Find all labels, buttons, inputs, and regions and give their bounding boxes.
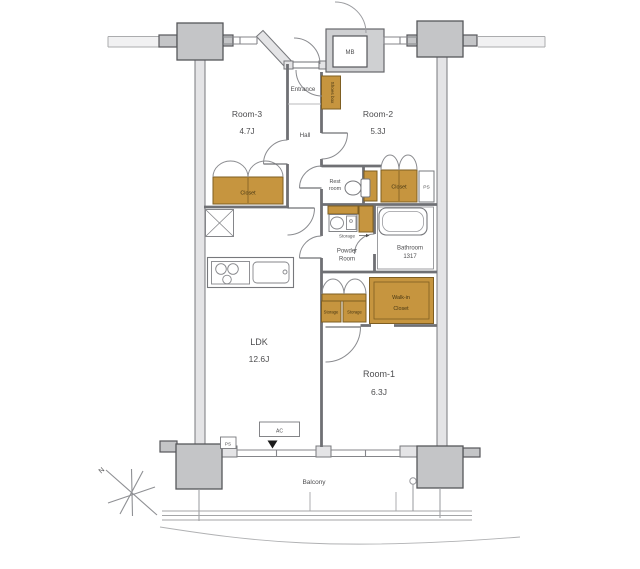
pillar-bottom-right bbox=[417, 446, 463, 488]
north-compass bbox=[106, 469, 157, 516]
entrance-door-arc bbox=[294, 38, 320, 64]
room2-name: Room-2 bbox=[363, 109, 394, 119]
bathroom-name: Bathroom bbox=[397, 246, 423, 252]
pillar-top-right bbox=[417, 21, 463, 57]
corridor-lines-right bbox=[478, 37, 545, 48]
room1-door-arc bbox=[326, 327, 361, 362]
linen-shelf bbox=[328, 206, 358, 214]
toilet bbox=[345, 179, 370, 197]
room2-closet-label: Closet bbox=[391, 185, 407, 191]
hall-ldk-door-arc bbox=[288, 208, 315, 235]
interior-walls bbox=[204, 64, 437, 447]
storage-right-label: Storage bbox=[347, 310, 362, 315]
kitchen-counter bbox=[208, 258, 294, 288]
direction-triangle bbox=[268, 441, 278, 449]
right-wall bbox=[437, 57, 447, 446]
room1-size: 6.3J bbox=[371, 387, 387, 397]
ac-label: AC bbox=[276, 429, 283, 435]
washbasin bbox=[329, 215, 357, 232]
rest-room-label-2: room bbox=[329, 186, 342, 192]
bathroom-door-arc bbox=[355, 234, 375, 254]
room2-size: 5.3J bbox=[370, 127, 385, 136]
mb-door-arc bbox=[335, 2, 366, 33]
floor-plan: MB Entrance Shoes box Room-3 4.7J Hall R… bbox=[0, 0, 640, 569]
ps-lower-label: PS bbox=[225, 442, 231, 447]
room1-name: Room-1 bbox=[363, 369, 395, 379]
mb-label: MB bbox=[346, 50, 355, 56]
walk-in-closet-label-1: Walk-in bbox=[392, 295, 410, 301]
bathtub bbox=[379, 208, 427, 235]
floor-plan-drawing: MB Entrance Shoes box Room-3 4.7J Hall R… bbox=[0, 0, 640, 569]
fixtures bbox=[206, 104, 434, 449]
ldk-size: 12.6J bbox=[249, 354, 270, 364]
rest-room-door-arc bbox=[300, 166, 322, 188]
meter-box bbox=[326, 2, 384, 72]
north-label: N bbox=[98, 467, 106, 476]
bathroom-size: 1317 bbox=[403, 254, 417, 260]
ground-line bbox=[160, 527, 520, 544]
left-wall bbox=[195, 60, 205, 445]
entrance-door-leaf bbox=[293, 62, 319, 68]
entrance-label: Entrance bbox=[291, 86, 316, 93]
room3-closet-label: Closet bbox=[240, 191, 256, 197]
balcony-rails bbox=[162, 492, 472, 520]
walk-in-closet-label-2: Closet bbox=[393, 306, 409, 312]
powder-room-label-2: Room bbox=[339, 257, 355, 263]
room2-door-arc bbox=[322, 133, 348, 159]
shoes-box-label: Shoes box bbox=[330, 82, 335, 104]
window-ldk-bottom bbox=[237, 450, 316, 457]
pillar-bottom-left bbox=[176, 444, 222, 489]
storage-pointer-label: Storage bbox=[339, 234, 356, 239]
balcony-label: Balcony bbox=[302, 479, 326, 486]
room3-size: 4.7J bbox=[239, 127, 254, 136]
powder-room-label-1: Powder bbox=[337, 249, 357, 255]
room3-name: Room-3 bbox=[232, 109, 263, 119]
storage-strip bbox=[322, 294, 366, 301]
rest-room-label-1: Rest bbox=[329, 179, 341, 185]
window-room1-bottom bbox=[331, 450, 400, 457]
windows bbox=[223, 37, 417, 457]
hall-label: Hall bbox=[300, 132, 311, 139]
ldk-name: LDK bbox=[250, 337, 268, 347]
tall-storage bbox=[359, 206, 373, 232]
ps-upper-label: PS bbox=[423, 185, 429, 191]
corridor-lines-left bbox=[108, 37, 160, 48]
balcony-faucet bbox=[410, 478, 416, 484]
pillars bbox=[159, 21, 480, 489]
room3-door-arc bbox=[264, 140, 288, 164]
pillar-top-left bbox=[177, 23, 223, 60]
storage-left-label: Storage bbox=[324, 310, 339, 315]
powder-door-arc bbox=[300, 236, 322, 258]
